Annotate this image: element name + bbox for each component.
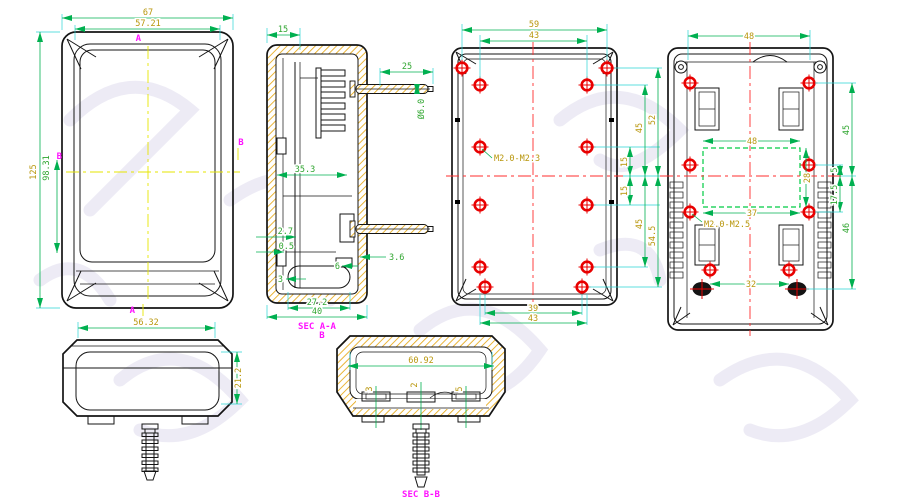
dim-bb-inner-width: 60.92 (408, 356, 434, 366)
dim-inner-outer-width: 59 (529, 20, 539, 30)
inner-view: 59 43 15 15 45 52 45 54.5 39 43 M2.0-M2.… (446, 20, 662, 325)
dim-front-outer-height: 125 (29, 164, 39, 179)
bottom-screw-right (785, 279, 809, 299)
dim-back-window-width: 48 (747, 137, 757, 147)
dim-aa-foot: 3 (278, 275, 283, 285)
dim-aa-wall-offset: 15 (278, 25, 288, 35)
dim-back-right-span: 45 (842, 125, 852, 135)
back-openings (695, 88, 803, 265)
dim-inner-upper-outer: 52 (648, 115, 658, 125)
dim-aa-boss-height: 6 (335, 262, 340, 272)
dim-back-window-bottom: 37 (747, 209, 757, 219)
dim-inner-lower-span: 45 (635, 219, 645, 229)
dim-front-inner-height: 98.31 (42, 155, 52, 181)
engineering-drawing: 67 57.21 125 98.31 A A B B 56.32 21.2 (0, 0, 900, 500)
mount-ear-right (814, 61, 826, 73)
dim-aa-base-width: 40 (312, 307, 322, 317)
dim-back-top-width: 48 (744, 32, 754, 42)
dim-front-inner-width: 57.21 (135, 19, 161, 29)
section-marker-b-right: B (238, 138, 244, 148)
section-marker-b-view5: B (319, 331, 325, 341)
back-side-ribs (670, 182, 831, 278)
back-dashed-window (703, 148, 800, 207)
side-foot-left (88, 416, 114, 424)
bottom-screw-left (690, 279, 714, 299)
section-bb-wall-anchor (413, 424, 429, 487)
thread-callout-m2-m23: M2.0-M2.3 (494, 154, 540, 164)
section-marker-a-bottom: A (130, 306, 136, 316)
dim-aa-gap: 0.5 (279, 242, 294, 252)
dim-back-right-lower: 46 (842, 223, 852, 233)
dim-bb-clip-right: 5 (455, 386, 465, 391)
dim-bb-clip-center: 2 (410, 382, 420, 387)
dim-aa-rib: 2.7 (278, 227, 293, 237)
dim-aa-clip: 3.6 (389, 253, 404, 263)
section-marker-a-top: A (136, 34, 142, 44)
dim-inner-mid-upper: 15 (620, 157, 630, 167)
back-screw-bosses (682, 75, 818, 279)
dim-aa-anchor-length: 25 (402, 62, 412, 72)
dim-back-right-offset: 5 (830, 167, 840, 172)
dim-inner-upper-span: 45 (635, 123, 645, 133)
section-bb-label: SEC B-B (402, 490, 441, 500)
dim-inner-bottom-boss: 39 (528, 304, 538, 314)
dim-back-bottom-width: 32 (746, 280, 756, 290)
back-corner-wedges (673, 307, 828, 325)
back-top-arc-notch (753, 56, 787, 63)
dim-back-window-height: 28 (803, 173, 813, 183)
dim-side-width: 56.32 (133, 318, 159, 328)
side-view: 56.32 21.2 (63, 318, 244, 480)
section-aa-label: SEC A-A (298, 322, 337, 332)
mount-ear-left (675, 61, 687, 73)
thread-callout-m2-m25: M2.0-M2.5 (704, 220, 750, 230)
dim-inner-bottom-width: 43 (528, 314, 538, 324)
dim-inner-boss-width: 43 (529, 31, 539, 41)
dim-bb-clip-left: 3 (365, 386, 375, 391)
dim-side-height: 21.2 (234, 368, 244, 388)
dim-back-right-mid: 17.5 (830, 185, 840, 205)
dim-aa-anchor-diameter: Ø6.0 (416, 99, 427, 119)
section-bb-view: 3 2 5 60.92 SEC B-B B (319, 331, 505, 500)
section-aa-view: 15 25 Ø6.0 35.3 2.7 0.5 3.6 6 3 27.2 40 … (256, 25, 433, 332)
cad-drawing-canvas: 67 57.21 125 98.31 A A B B 56.32 21.2 (0, 0, 900, 500)
dim-inner-lower-outer: 54.5 (648, 226, 658, 246)
back-view: 48 48 28 37 32 M2.0-M2.5 45 5 17.5 46 (660, 30, 856, 336)
section-marker-b-left: B (57, 152, 63, 162)
dim-inner-mid-lower: 15 (620, 186, 630, 196)
front-outer-outline (62, 32, 233, 308)
dim-front-outer-width: 67 (143, 8, 153, 18)
dim-aa-inner-width: 35.3 (295, 165, 315, 175)
